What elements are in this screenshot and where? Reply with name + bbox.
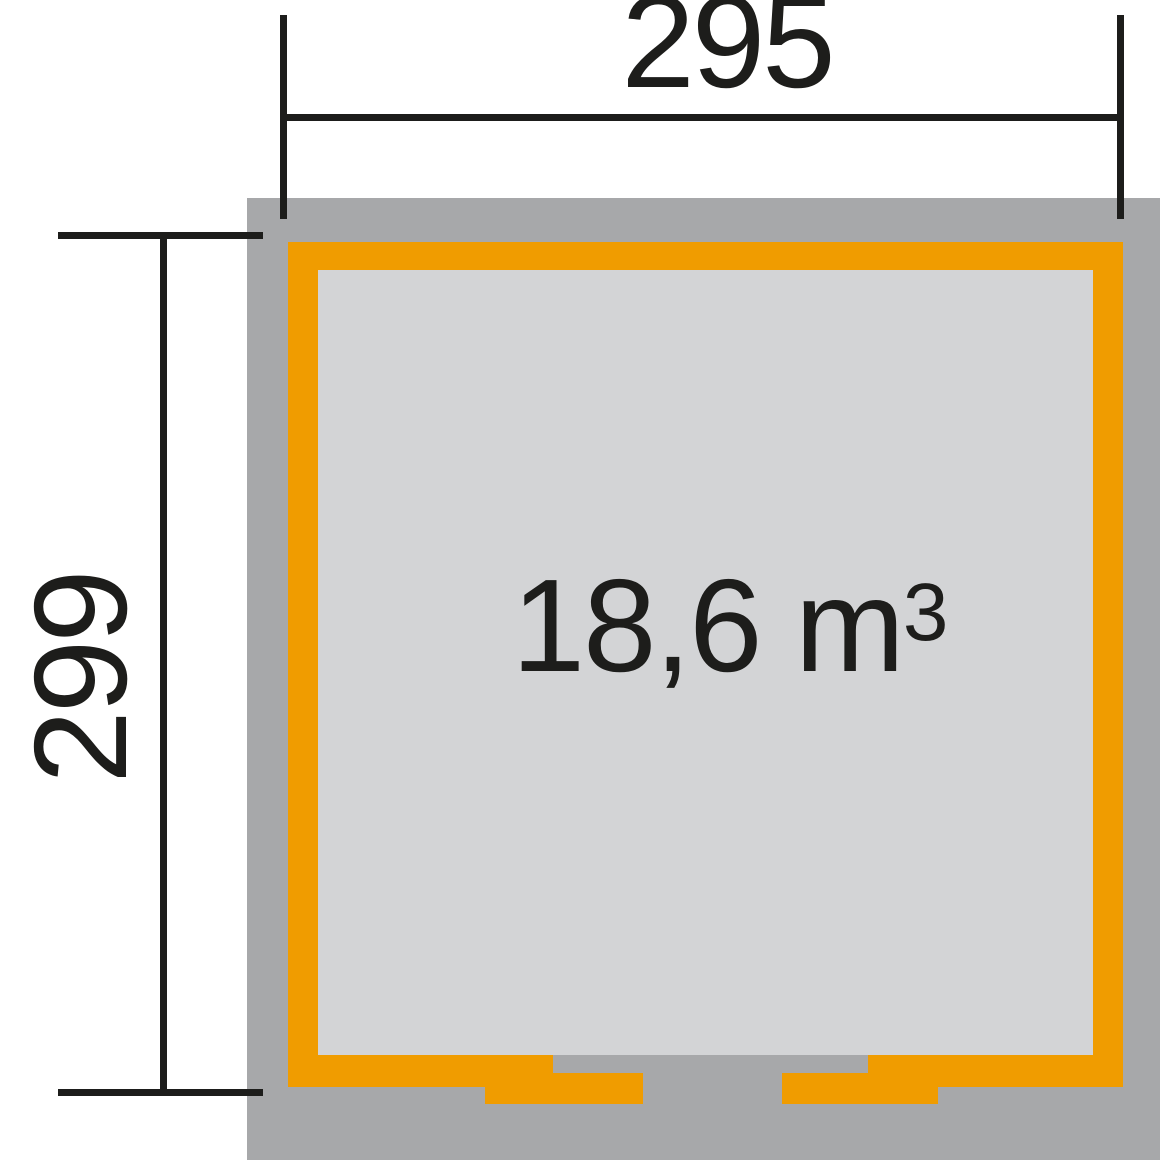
depth-dimension-label: 299 xyxy=(15,572,147,783)
volume-unit: m xyxy=(795,552,903,699)
width-dimension-tick-left xyxy=(280,15,287,219)
depth-dimension-tick-bottom xyxy=(58,1089,263,1096)
depth-dimension-tick-top xyxy=(58,232,263,239)
door-leaf-right xyxy=(782,1073,938,1104)
width-dimension-label: 295 xyxy=(621,0,832,108)
depth-dimension-line xyxy=(160,232,167,1093)
door-leaf-left xyxy=(485,1073,643,1104)
volume-exponent: 3 xyxy=(903,567,949,658)
floorplan-diagram: 295 299 18,6m3 xyxy=(0,0,1160,1160)
volume-value: 18,6 xyxy=(512,552,761,699)
width-dimension-tick-right xyxy=(1117,15,1124,219)
volume-label: 18,6m3 xyxy=(512,560,949,692)
width-dimension-line xyxy=(283,114,1124,121)
